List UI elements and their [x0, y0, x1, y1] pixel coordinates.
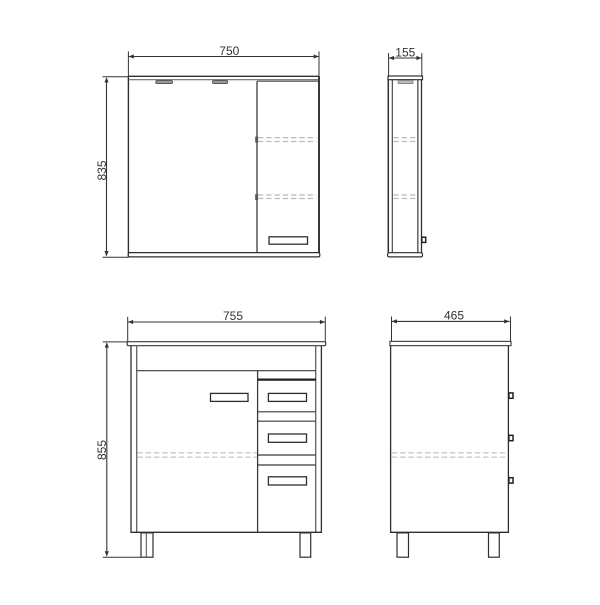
svg-text:755: 755 [223, 309, 243, 323]
svg-text:155: 155 [395, 45, 415, 59]
svg-text:750: 750 [219, 44, 239, 58]
svg-text:465: 465 [444, 309, 464, 323]
